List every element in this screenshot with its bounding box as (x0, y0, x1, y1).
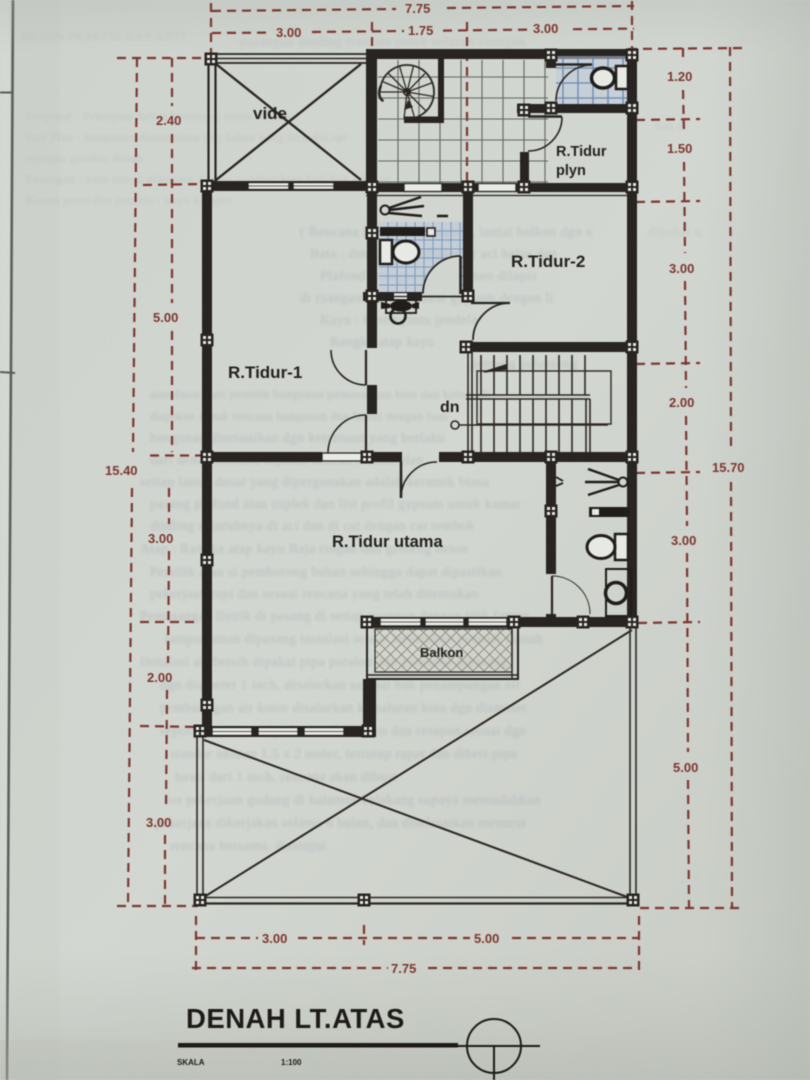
svg-text:DENAH LT.ATAS: DENAH LT.ATAS (186, 1003, 405, 1034)
svg-text:SKALA: SKALA (177, 1058, 205, 1067)
svg-text:1:100: 1:100 (281, 1058, 302, 1067)
